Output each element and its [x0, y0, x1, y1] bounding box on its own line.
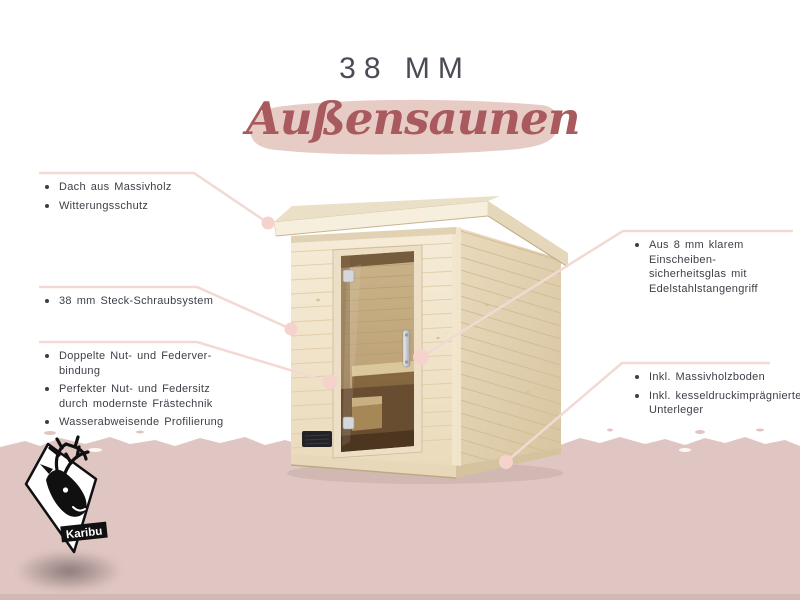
page-title: 38 MM [0, 52, 800, 86]
connector-dot-door-glass [413, 349, 429, 365]
feature-item: Perfekter Nut- und Federsitz durch moder… [44, 382, 249, 411]
product-category-title: Außensaunen [246, 92, 562, 145]
feature-list-wall-system: 38 mm Steck-Schraubsystem [44, 294, 254, 313]
feature-list-roof: Dach aus Massivholz Witterungsschutz [44, 180, 224, 217]
feature-list-planks: Doppelte Nut- und Federver- bindung Perf… [44, 349, 249, 434]
connector-dot-floor [499, 455, 513, 469]
sauna-infographic: 38 MM Außensaunen Dach aus Massivholz Wi… [0, 0, 800, 600]
feature-item: Witterungsschutz [44, 199, 224, 214]
feature-item: Doppelte Nut- und Federver- bindung [44, 349, 249, 378]
brush-stroke: Außensaunen [246, 96, 562, 158]
feature-item: Aus 8 mm klarem Einscheiben- sicherheits… [634, 238, 800, 296]
feature-list-floor: Inkl. Massivholzboden Inkl. kesseldrucki… [634, 370, 800, 422]
feature-item: Wasserabweisende Profilierung [44, 415, 249, 430]
connector-dot-planks [323, 375, 338, 390]
feature-item: Inkl. kesseldruckimprägnierter Unterlege… [634, 389, 800, 418]
feature-list-door-glass: Aus 8 mm klarem Einscheiben- sicherheits… [634, 238, 800, 300]
brand-label: Karibu [65, 526, 102, 542]
feature-item: Dach aus Massivholz [44, 180, 224, 195]
karibu-logo: Karibu [10, 430, 130, 580]
feature-item: 38 mm Steck-Schraubsystem [44, 294, 254, 309]
connector-dot-wall-system [285, 323, 298, 336]
feature-item: Inkl. Massivholzboden [634, 370, 800, 385]
connector-dot-roof [262, 217, 275, 230]
